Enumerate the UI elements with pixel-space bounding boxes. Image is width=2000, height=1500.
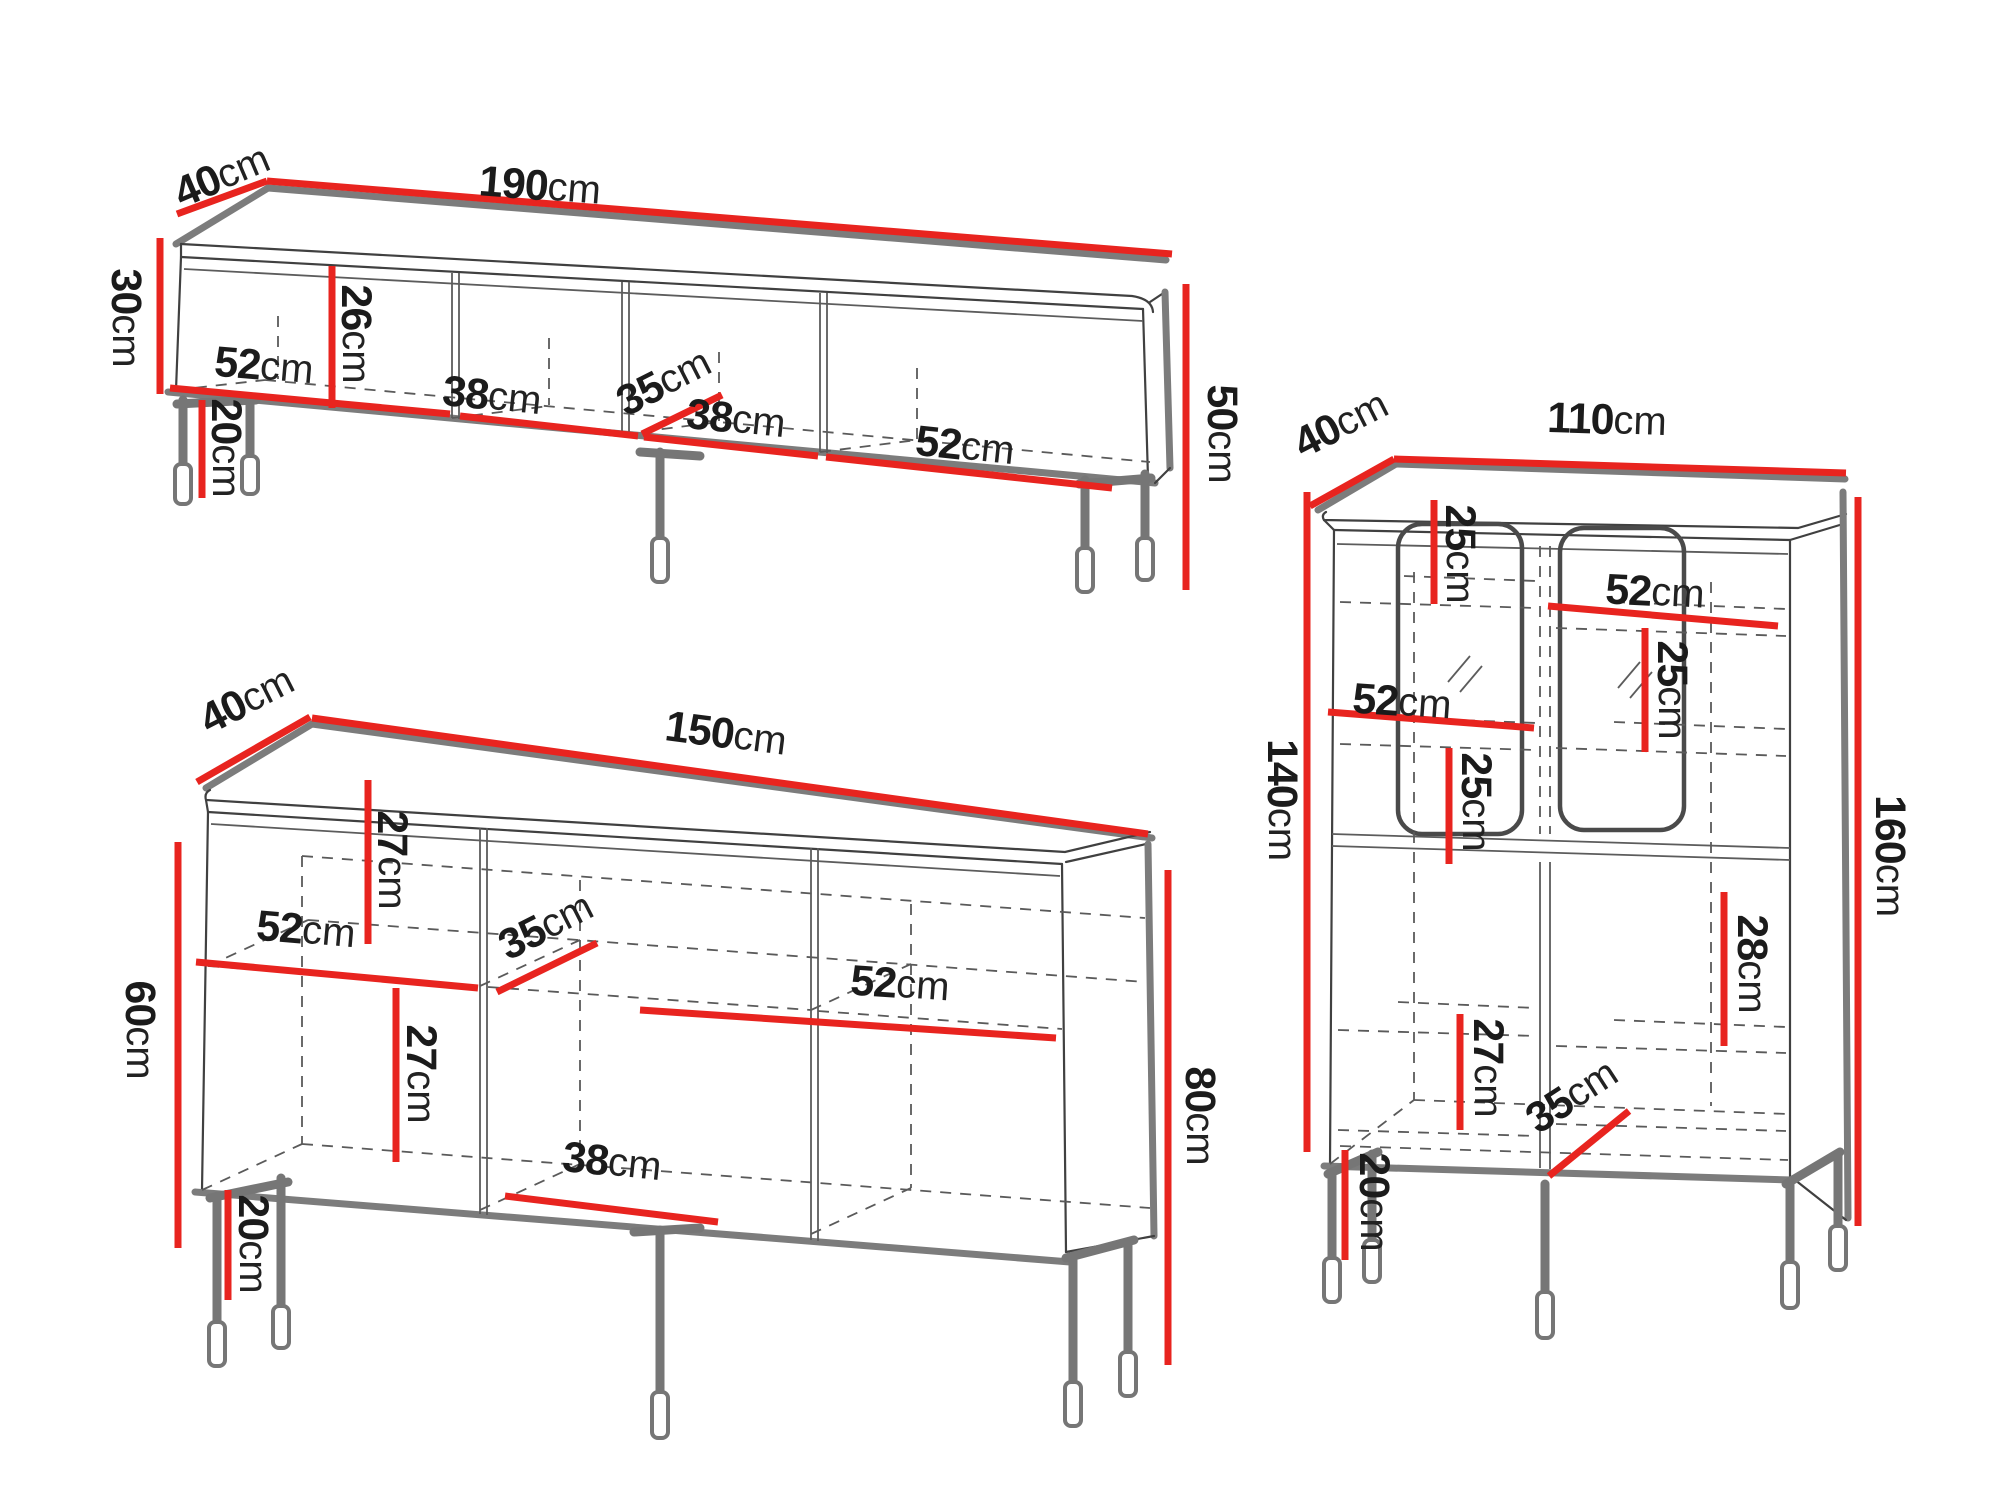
cabinet-width-label: 110cm — [1546, 394, 1667, 446]
sideboard-leg-height-label: 20cm — [229, 1194, 277, 1293]
sideboard-section-mid-label: 38cm — [560, 1133, 664, 1191]
cabinet-right-door-label: 28cm — [1728, 914, 1776, 1013]
furniture-dimension-diagram: 40cm 190cm 30cm 50cm 26cm 52cm 38cm 35cm… — [0, 0, 2000, 1500]
tv-leg-height-label: 20cm — [202, 398, 250, 497]
cabinet-body-height-label: 140cm — [1258, 739, 1306, 861]
sideboard-body-height-label: 60cm — [116, 980, 164, 1079]
sideboard-outline — [195, 724, 1154, 1262]
cabinet-left-mid-width-label: 52cm — [1351, 675, 1453, 730]
cabinet-total-height-label: 160cm — [1866, 795, 1914, 917]
cabinet-top-shelf-label: 25cm — [1436, 504, 1484, 603]
sideboard-width-label: 150cm — [662, 702, 789, 766]
sideboard-dimension-lines — [178, 717, 1168, 1365]
sideboard-section-left-label: 52cm — [255, 902, 358, 958]
tv-total-height-label: 50cm — [1198, 384, 1246, 483]
display-cabinet-drawing: 40cm 110cm 140cm 160cm 25cm 52cm 25cm 52… — [1258, 380, 1914, 1338]
cabinet-leg-height-label: 20cm — [1350, 1152, 1398, 1251]
sideboard-top-shelf-label: 27cm — [368, 810, 416, 909]
cabinet-left-door-label: 27cm — [1464, 1018, 1512, 1117]
tv-stand-drawing: 40cm 190cm 30cm 50cm 26cm 52cm 38cm 35cm… — [102, 135, 1246, 592]
sideboard-section-right-label: 52cm — [849, 957, 951, 1012]
sideboard-drawing: 40cm 150cm 60cm 80cm 27cm 52cm 35cm 27cm… — [116, 656, 1224, 1438]
cabinet-right-top-width-label: 52cm — [1604, 565, 1706, 618]
cabinet-left-shelf-label: 25cm — [1452, 752, 1500, 851]
tv-section-left-label: 52cm — [213, 338, 316, 394]
sideboard-total-height-label: 80cm — [1176, 1066, 1224, 1165]
tv-shelf-height-label: 26cm — [332, 284, 380, 383]
tv-body-height-label: 30cm — [102, 268, 150, 367]
tv-depth-label: 40cm — [167, 135, 277, 218]
cabinet-right-shelf-label: 25cm — [1648, 640, 1696, 739]
tv-width-label: 190cm — [477, 157, 602, 214]
diagram-canvas: 40cm 190cm 30cm 50cm 26cm 52cm 38cm 35cm… — [0, 0, 2000, 1500]
cabinet-depth-label: 40cm — [1286, 380, 1396, 468]
sideboard-inner-depth-label: 35cm — [491, 882, 601, 970]
cabinet-labels: 40cm 110cm 140cm 160cm 25cm 52cm 25cm 52… — [1258, 380, 1914, 1251]
sideboard-bottom-shelf-label: 27cm — [397, 1024, 445, 1123]
